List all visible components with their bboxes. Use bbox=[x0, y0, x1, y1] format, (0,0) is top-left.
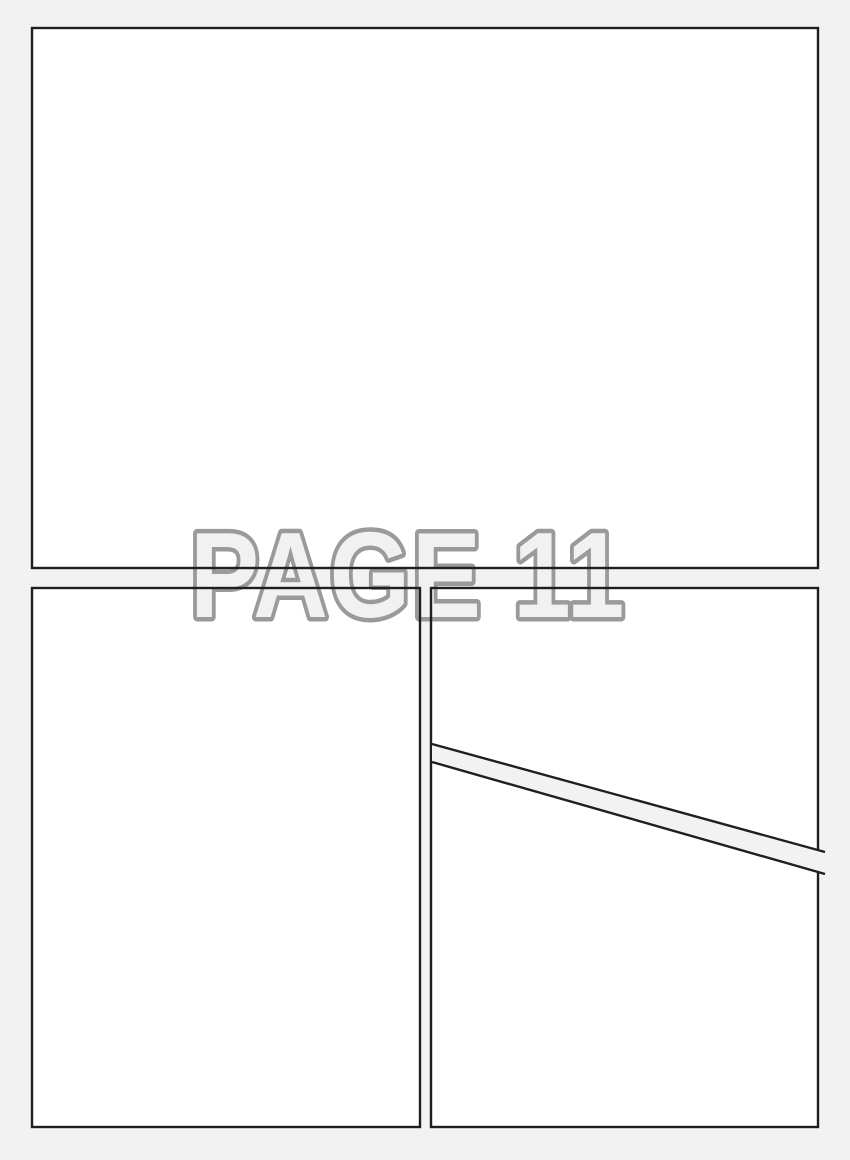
page-number-label: PAGE 11 bbox=[190, 507, 626, 643]
bottom-left-panel-fill bbox=[32, 588, 420, 1127]
page-layout-svg: PAGE 11 bbox=[0, 0, 850, 1160]
comic-page-template: PAGE 11 bbox=[0, 0, 850, 1160]
bottom-right-panel-fill bbox=[431, 588, 818, 1127]
top-panel-fill bbox=[32, 28, 818, 568]
